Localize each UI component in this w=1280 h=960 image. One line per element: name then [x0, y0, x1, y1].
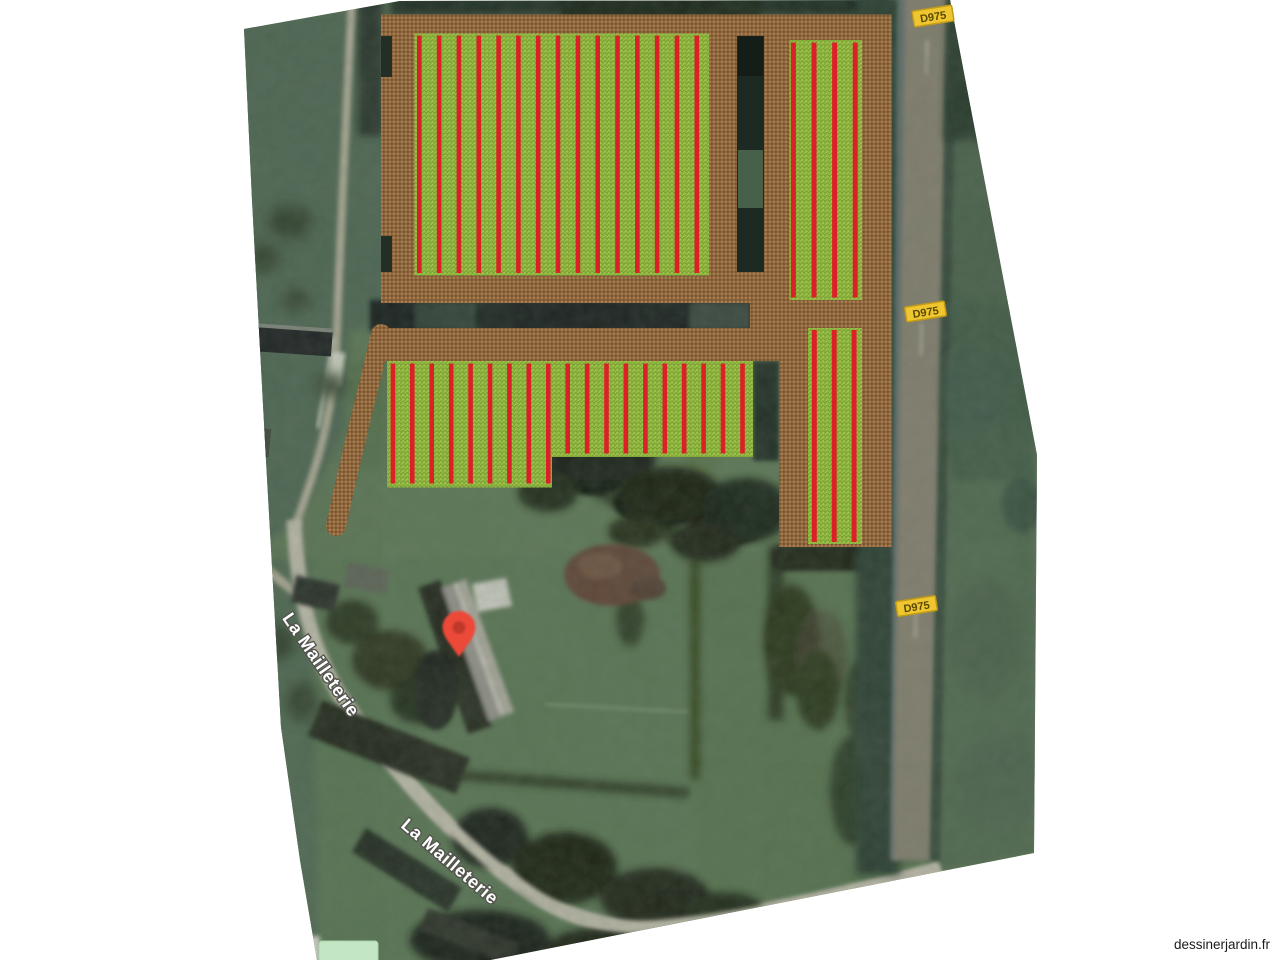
- svg-text:dessinerjardin.fr: dessinerjardin.fr: [1174, 937, 1271, 952]
